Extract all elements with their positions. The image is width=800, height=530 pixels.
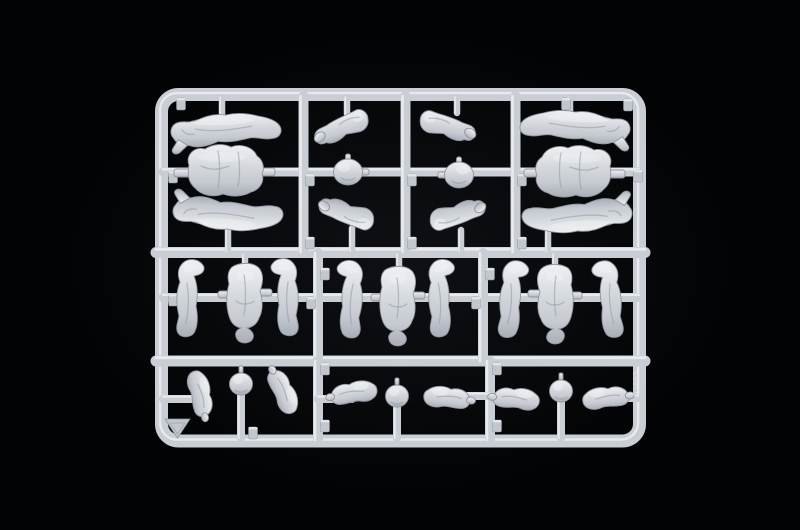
molded-number-tab [408, 237, 417, 239]
molded-part-code: 51005 [632, 370, 640, 395]
molded-number-tab [624, 99, 633, 101]
molded-number-tab [321, 420, 330, 422]
molded-number-tab [306, 237, 315, 239]
molded-number-tab [321, 268, 330, 270]
molded-number-tab [249, 427, 258, 429]
sprue-runner: 51005 [0, 0, 800, 530]
molded-number-tab [634, 170, 643, 172]
molded-number-tab [321, 363, 330, 365]
molded-number-tab [493, 363, 502, 365]
molded-number-tab [493, 420, 502, 422]
molded-number-tab [562, 98, 571, 100]
molded-number-tab [408, 174, 417, 176]
molded-number-tab [177, 98, 186, 100]
molded-number-tab [486, 268, 495, 270]
molded-number-tab [307, 297, 316, 299]
molded-number-tab [518, 237, 527, 239]
molded-number-tab [306, 174, 315, 176]
photo-model-sprue: 51005 [0, 0, 800, 530]
molded-number-tab [169, 294, 178, 296]
molded-number-tab [472, 297, 481, 299]
